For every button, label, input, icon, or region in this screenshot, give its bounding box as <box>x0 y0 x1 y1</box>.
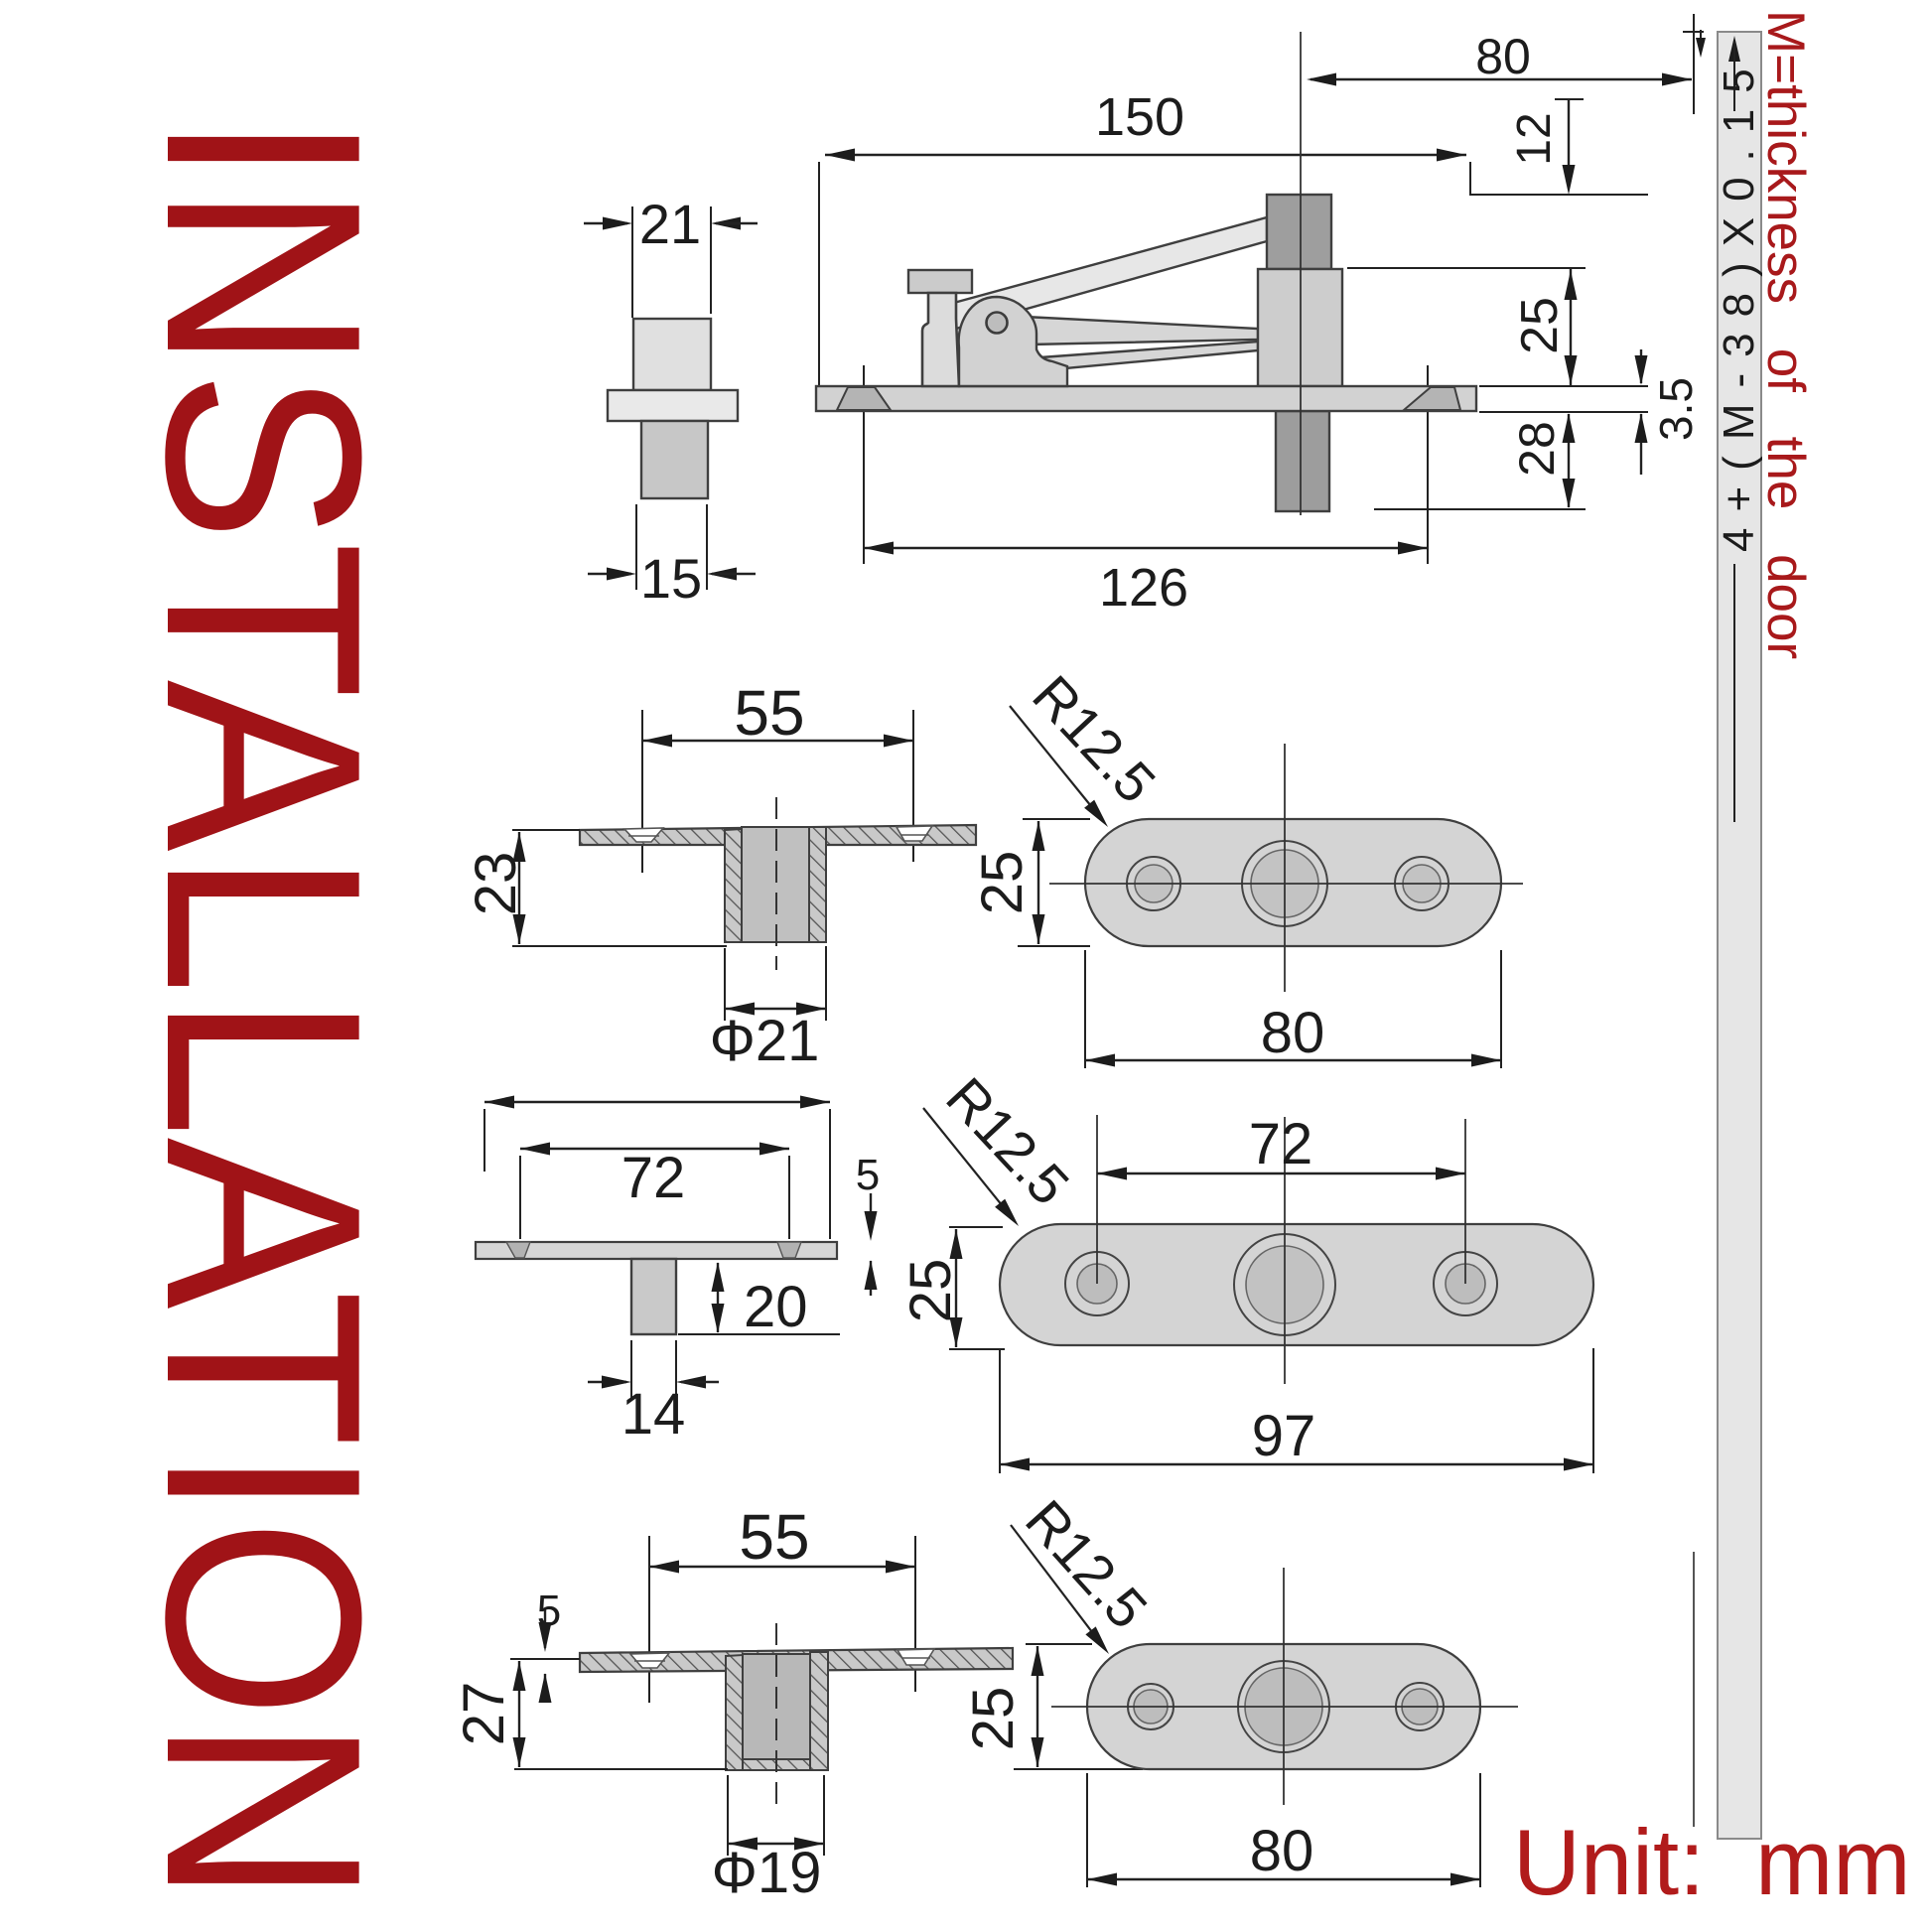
svg-text:80: 80 <box>1475 29 1531 84</box>
svg-text:80: 80 <box>1261 1001 1325 1065</box>
svg-text:23: 23 <box>464 852 528 916</box>
svg-text:15: 15 <box>640 547 702 610</box>
svg-text:126: 126 <box>1099 558 1188 618</box>
svg-text:21: 21 <box>639 193 701 255</box>
svg-text:72: 72 <box>621 1146 686 1210</box>
svg-text:80: 80 <box>1250 1819 1314 1883</box>
svg-text:28: 28 <box>1509 421 1565 477</box>
svg-text:25: 25 <box>970 851 1035 915</box>
svg-text:150: 150 <box>1095 87 1184 147</box>
svg-text:72: 72 <box>1249 1112 1313 1176</box>
svg-text:Φ19: Φ19 <box>712 1841 822 1905</box>
svg-text:97: 97 <box>1252 1404 1316 1468</box>
svg-text:M=thickness of the door: M=thickness of the door <box>1756 10 1815 659</box>
svg-text:27: 27 <box>452 1682 516 1746</box>
svg-text:20: 20 <box>744 1275 808 1339</box>
svg-text:4+(M-38)X0.15: 4+(M-38)X0.15 <box>1715 53 1763 552</box>
svg-text:INSTALLATION: INSTALLATION <box>108 113 418 1904</box>
svg-text:5: 5 <box>856 1151 880 1199</box>
svg-text:5: 5 <box>537 1587 561 1635</box>
svg-text:14: 14 <box>621 1382 686 1447</box>
svg-text:Unit:: Unit: <box>1513 1810 1705 1914</box>
svg-text:12: 12 <box>1508 112 1561 165</box>
svg-text:3.5: 3.5 <box>1650 377 1702 441</box>
svg-text:25: 25 <box>898 1259 963 1323</box>
svg-text:55: 55 <box>739 1501 809 1573</box>
svg-text:Φ21: Φ21 <box>710 1009 820 1073</box>
svg-text:25: 25 <box>961 1687 1026 1751</box>
svg-text:55: 55 <box>734 677 804 749</box>
svg-text:mm: mm <box>1755 1810 1911 1914</box>
svg-text:25: 25 <box>1511 297 1569 354</box>
